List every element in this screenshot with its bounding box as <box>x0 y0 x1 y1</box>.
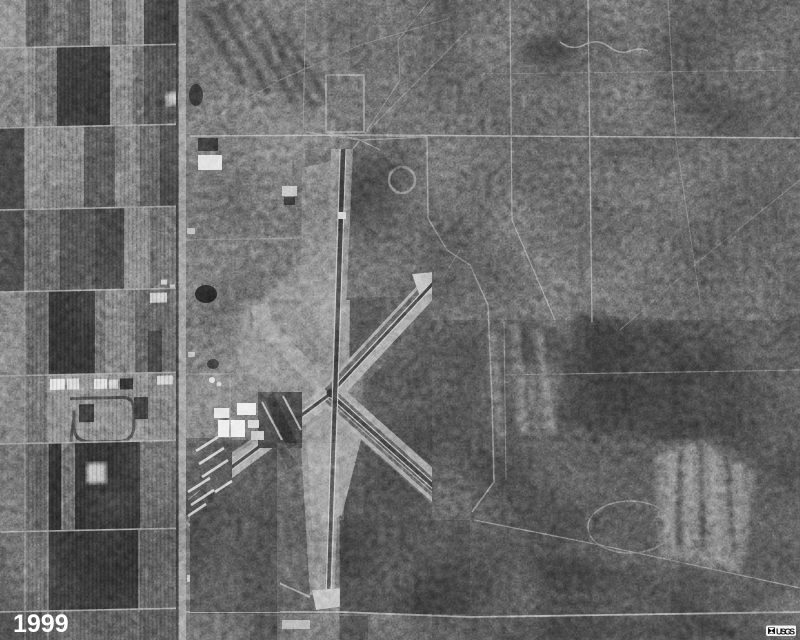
svg-text:USGS: USGS <box>776 627 795 637</box>
svg-text:1999: 1999 <box>13 610 69 638</box>
